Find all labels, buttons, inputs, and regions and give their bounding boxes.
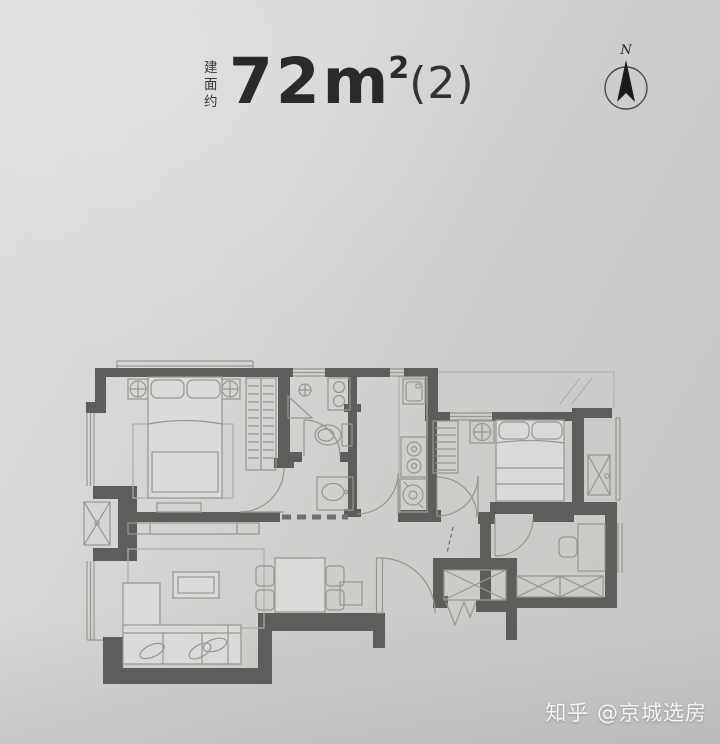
ac-platform-west [84,502,110,545]
door-master-bedroom [240,468,284,512]
dining-table [275,558,325,612]
shower-corner-icon [288,396,312,418]
bay-window-living [87,561,103,640]
desk [578,524,605,571]
dashed-walls [282,517,453,553]
toilet-icon [315,425,341,445]
side-table [340,582,362,605]
sofa-chaise [123,583,160,628]
door-entry [438,476,478,516]
dining-chair [256,566,274,586]
dining-chair [256,590,274,610]
dining-furniture [256,558,362,612]
double-bed [148,377,222,498]
door-bathroom [304,420,340,456]
window-second-bedroom [450,413,492,420]
door-kitchen [357,473,398,514]
door-study [495,518,533,556]
tv-cabinet [128,523,259,534]
dining-chair [326,566,344,586]
gas-stove-icon [401,437,427,477]
bay-window-bedroom [87,413,94,486]
window-study [618,523,622,573]
elevator-doors-icon [446,602,476,625]
window-bathroom [293,369,325,376]
kitchen-fixtures [399,377,427,512]
north-window-bedroom [117,361,253,368]
photo-of-floorplan-page: 建面约 72m2(2) N [0,0,720,744]
single-bed [496,420,564,501]
window-kitchen [390,369,404,376]
elevator-shaft [444,570,506,625]
watermark: 知乎 @京城选房 [545,697,707,727]
second-bedroom-furniture [433,420,564,501]
ac-platform-east [588,455,610,495]
dresser [157,503,201,512]
master-bedroom-furniture [128,377,276,512]
exterior-outline [438,372,614,408]
railing-east [616,418,620,500]
study-furniture [517,524,605,597]
coffee-table [173,572,219,598]
door-hall-living [377,558,436,613]
dining-chair [326,590,344,610]
washbasin-icon [322,484,344,501]
sofa [123,625,241,664]
bathroom-fixtures [288,378,353,510]
floorplan-drawing [0,0,720,744]
living-room-furniture [123,523,264,664]
desk-chair [559,537,577,557]
